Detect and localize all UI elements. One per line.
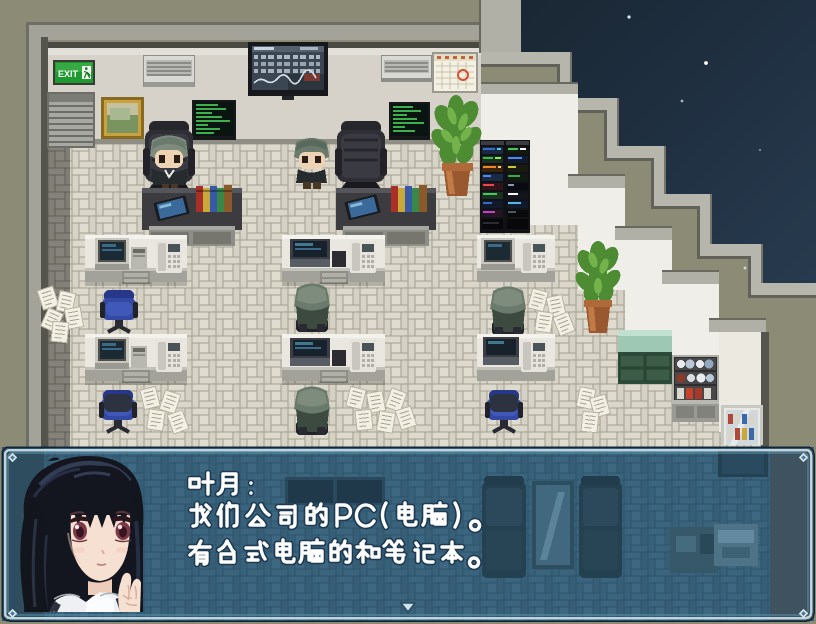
svg-text:EXIT: EXIT [58,69,79,79]
